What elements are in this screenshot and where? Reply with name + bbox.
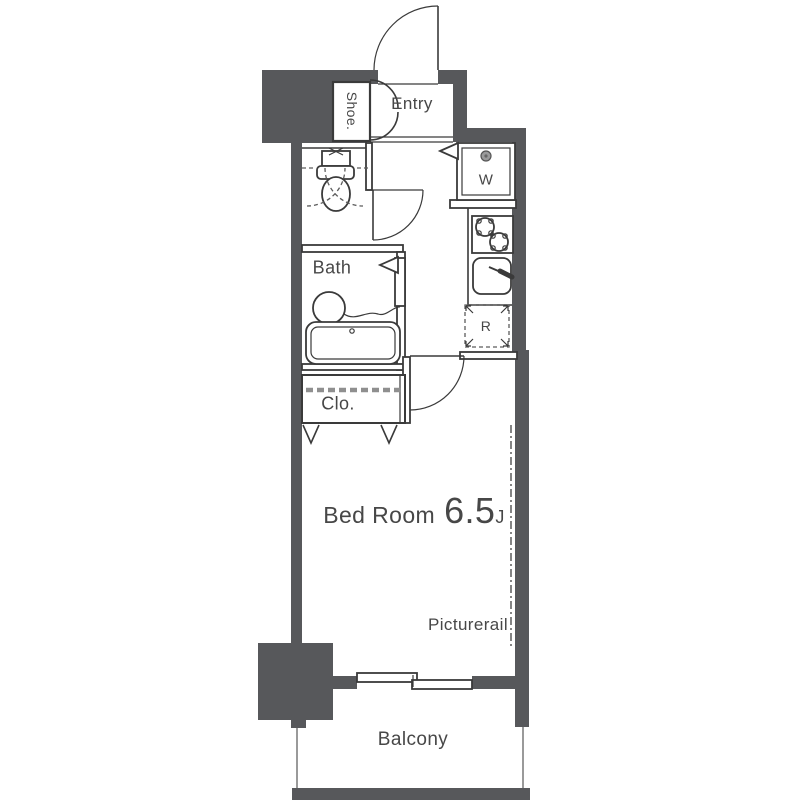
washer-door-marker-icon (440, 143, 458, 159)
window-sill-left (333, 676, 357, 689)
hallway-door-arc (367, 190, 423, 240)
stove-icon (472, 216, 513, 253)
wall-right-lower (515, 350, 529, 727)
washer-label: W (479, 172, 494, 189)
picture-rail-label: Picturerail (428, 615, 508, 635)
closet-hanger-icon (381, 425, 397, 443)
bedroom-size-unit: J (495, 507, 504, 527)
closet-hanger-icon (303, 425, 319, 443)
balcony-edge (292, 788, 530, 800)
bath-door-marker-icon (380, 257, 398, 273)
fridge-label: R (481, 318, 492, 334)
bedroom-label-group: Bed Room6.5J (323, 490, 505, 532)
wall-left (291, 143, 302, 648)
bath-floor-curve (344, 307, 400, 317)
kitchen-sink-icon (473, 258, 512, 294)
wall-entry-right (453, 70, 467, 138)
bathtub-icon (306, 322, 400, 364)
window-sill-right (472, 676, 517, 689)
shoe-closet-label: Shoe. (344, 92, 360, 131)
bath-door (380, 257, 405, 306)
floor-plan: Shoe. Entry W Bath Clo. R Bed Room6.5J P… (0, 0, 800, 800)
bedroom-door-arc (410, 356, 464, 410)
closet-label: Clo. (321, 394, 355, 415)
pillar (258, 643, 333, 720)
entry-label: Entry (391, 94, 433, 114)
bedroom-label: Bed Room (323, 502, 435, 528)
toilet-icon (317, 148, 354, 211)
pillar-stub (291, 720, 306, 728)
washing-machine-icon (440, 143, 515, 200)
bath-label: Bath (313, 258, 352, 279)
wash-basin-icon (313, 292, 345, 324)
bedroom-size: 6.5 (444, 490, 495, 531)
shoe-closet (333, 80, 398, 141)
balcony-label: Balcony (378, 729, 448, 751)
sliding-window-icon (357, 673, 472, 689)
floor-plan-drawing (0, 0, 800, 800)
front-door-arc (374, 6, 438, 70)
